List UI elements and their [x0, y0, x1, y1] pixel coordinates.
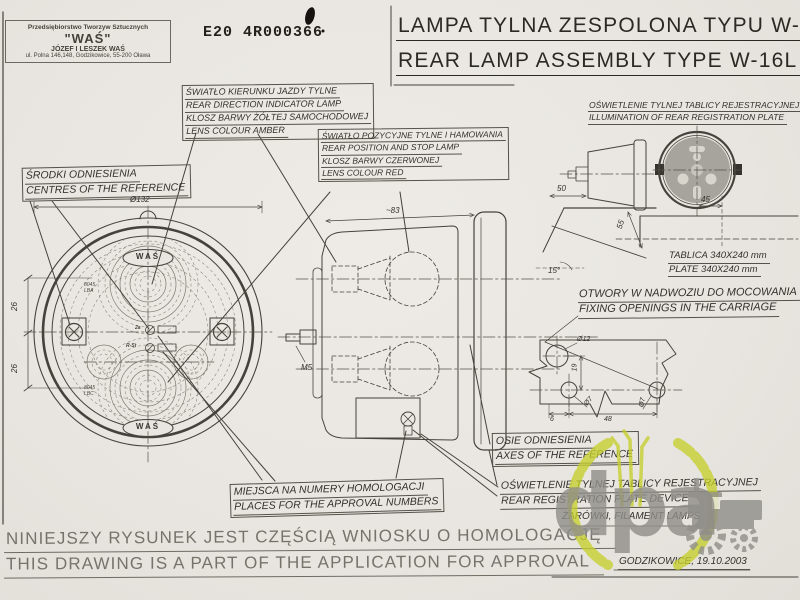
approval-symbol-2: R-St [126, 344, 136, 350]
centres-en: CENTRES OF THE REFERENCE [25, 181, 188, 199]
dim-hole-12: Ø12 [577, 336, 590, 343]
axes-pl: OSIE ODNIESIENIA [495, 434, 595, 450]
approval-symbol-1: 2a [135, 326, 141, 332]
title-block: LAMPA TYLNA ZESPOLONA TYPU W-16L REAR LA… [396, 14, 800, 76]
dim-angle-15: 15° [548, 266, 560, 275]
indicator-pl2: KLOSZ BARWY ŻÓŁTEJ SAMOCHODOWEJ [185, 111, 371, 126]
lens-code-bottom-2: LBC [84, 391, 94, 397]
illumination-en: ILLUMINATION OF REAR REGISTRATION PLATE [588, 112, 787, 124]
label-position-stop-lamp: ŚWIATŁO POZYCYJNE TYLNE I HAMOWANIA REAR… [318, 127, 510, 182]
company-owners: JÓZEF I LESZEK WAŚ [7, 46, 169, 53]
fixing-en: FIXING OPENINGS IN THE CARRIAGE [578, 301, 780, 319]
company-type: Przedsiębiorstwo Tworzyw Sztucznych [7, 24, 169, 31]
place-and-date: GODZIKOWICE, 19.10.2003 [618, 556, 750, 570]
dim-depth-83: ~83 [386, 206, 400, 215]
plate-pl: TABLICA 340X240 mm [668, 250, 770, 264]
was-badge-top: WAŚ [124, 252, 172, 261]
label-approval-places: MIEJSCA NA NUMERY HOMOLOGACJI PLACES FOR… [230, 478, 445, 518]
type-approval-mark: E20 4R000366 [203, 24, 323, 41]
dim-reg-50: 50 [557, 184, 566, 193]
label-illumination: OŚWIETLENIE TYLNEJ TABLICY REJESTRACYJNE… [588, 100, 800, 125]
dim-offset-6: 6 [550, 416, 554, 423]
dim-26-bottom: 26 [10, 364, 19, 373]
plate-en: PLATE 340X240 mm [668, 264, 761, 278]
illumination-pl: OŚWIETLENIE TYLNEJ TABLICY REJESTRACYJNE… [588, 100, 800, 112]
label-fixing-openings: OTWORY W NADWOZIU DO MOCOWANIA FIXING OP… [578, 286, 800, 319]
reg-lamp-front-view [616, 126, 798, 247]
position-pl: ŚWIATŁO POZYCYJNE TYLNE I HAMOWANIA [321, 129, 506, 143]
dim-26-top: 26 [10, 302, 19, 311]
dim-spacing-48: 48 [604, 416, 612, 423]
label-centres-of-reference: ŚRODKI ODNIESIENIA CENTRES OF THE REFERE… [22, 164, 192, 201]
title-en: REAR LAMP ASSEMBLY TYPE W-16L [396, 49, 800, 76]
drawing-sheet: Przedsiębiorstwo Tworzyw Sztucznych "WAŚ… [0, 0, 800, 600]
title-pl: LAMPA TYLNA ZESPOLONA TYPU W-16L [396, 14, 800, 41]
company-name: "WAŚ" [7, 31, 169, 46]
position-pl2: KLOSZ BARWY CZERWONEJ [321, 154, 442, 168]
lens-code-top-2: LBA [84, 288, 93, 294]
dim-reg-45: 45 [701, 195, 710, 204]
footer-statement-en: THIS DRAWING IS A PART OF THE APPLICATIO… [4, 551, 604, 578]
company-stamp: Przedsiębiorstwo Tworzyw Sztucznych "WAŚ… [5, 20, 171, 63]
was-badge-bottom: WAŚ [124, 422, 172, 431]
fixing-openings-view [529, 316, 682, 418]
label-plate-size: TABLICA 340X240 mm PLATE 340X240 mm [668, 250, 770, 277]
indicator-en2: LENS COLOUR AMBER [185, 125, 288, 139]
watermark-text: dpa [552, 468, 715, 545]
dim-lamp-diameter: Ø132 [130, 195, 150, 204]
footer-statement-pl: NINIEJSZY RYSUNEK JEST CZĘŚCIĄ WNIOSKU O… [4, 525, 616, 553]
position-en2: LENS COLOUR RED [321, 167, 406, 180]
place-date-text: GODZIKOWICE, 19.10.2003 [618, 556, 750, 570]
dim-spacing-19: 19 [571, 364, 578, 372]
lens-code-bottom: 8045 LBC [84, 386, 95, 397]
reg-lamp-side-view [536, 140, 662, 270]
dim-stud-m5: M5 [301, 363, 312, 372]
company-address: ul. Polna 146,148, Godzikowice, 55-200 O… [7, 53, 169, 59]
lens-code-top: 8045 LBA [84, 283, 95, 294]
